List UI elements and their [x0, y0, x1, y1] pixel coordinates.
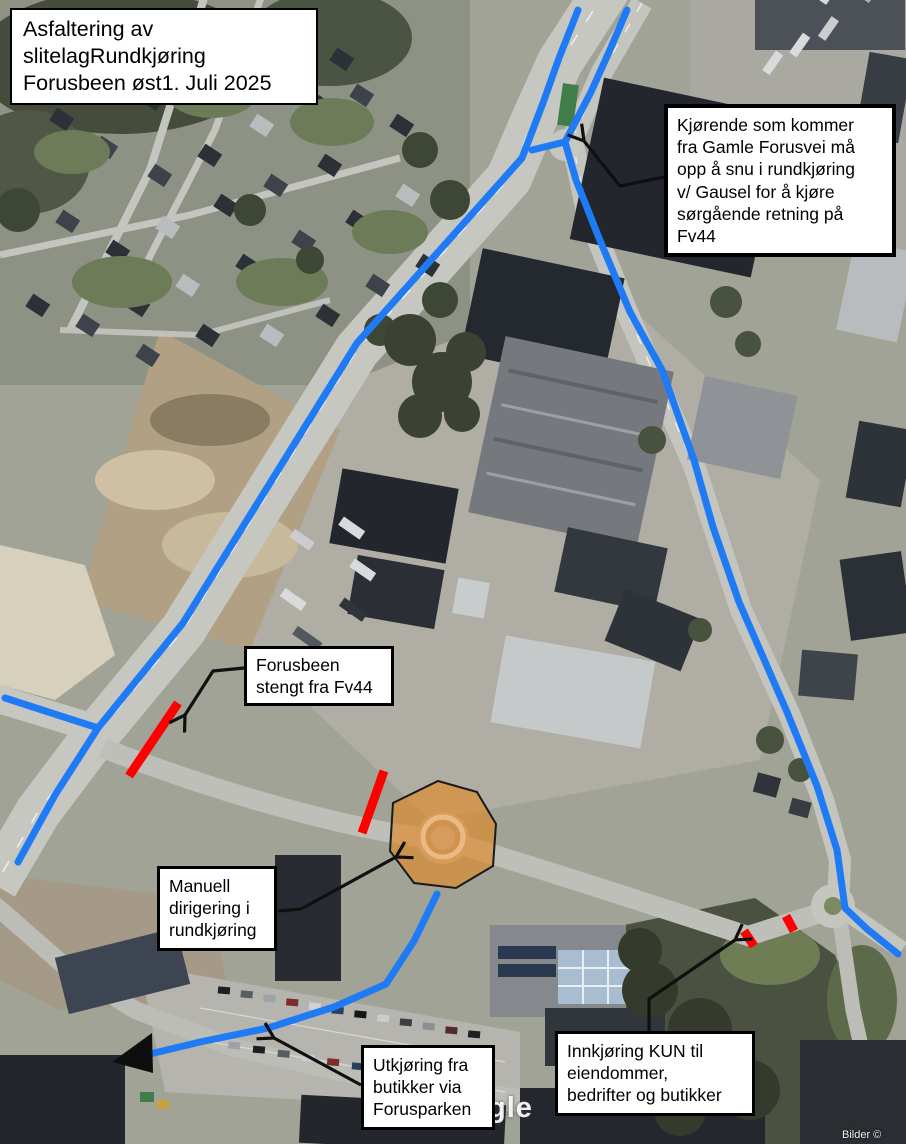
callout-manual-direction: Manuell dirigering i rundkjøring [157, 866, 277, 951]
manual-zone-polygon [390, 781, 496, 888]
callout-gausel-turn: Kjørende som kommer fra Gamle Forusvei m… [664, 104, 896, 257]
map-title-box: Asfaltering av slitelagRundkjøring Forus… [10, 8, 318, 105]
callout-entry-only: Innkjøring KUN til eiendommer, bedrifter… [555, 1031, 755, 1116]
imagery-attribution: Bilder © [842, 1129, 881, 1141]
annotated-satellite-map: Asfaltering av slitelagRundkjøring Forus… [0, 0, 906, 1144]
manual-direction-zone [390, 781, 496, 888]
callout-forusbeen-closed: Forusbeen stengt fra Fv44 [244, 646, 394, 706]
callout-exit-foruspark: Utkjøring fra butikker via Forusparken [361, 1045, 495, 1130]
